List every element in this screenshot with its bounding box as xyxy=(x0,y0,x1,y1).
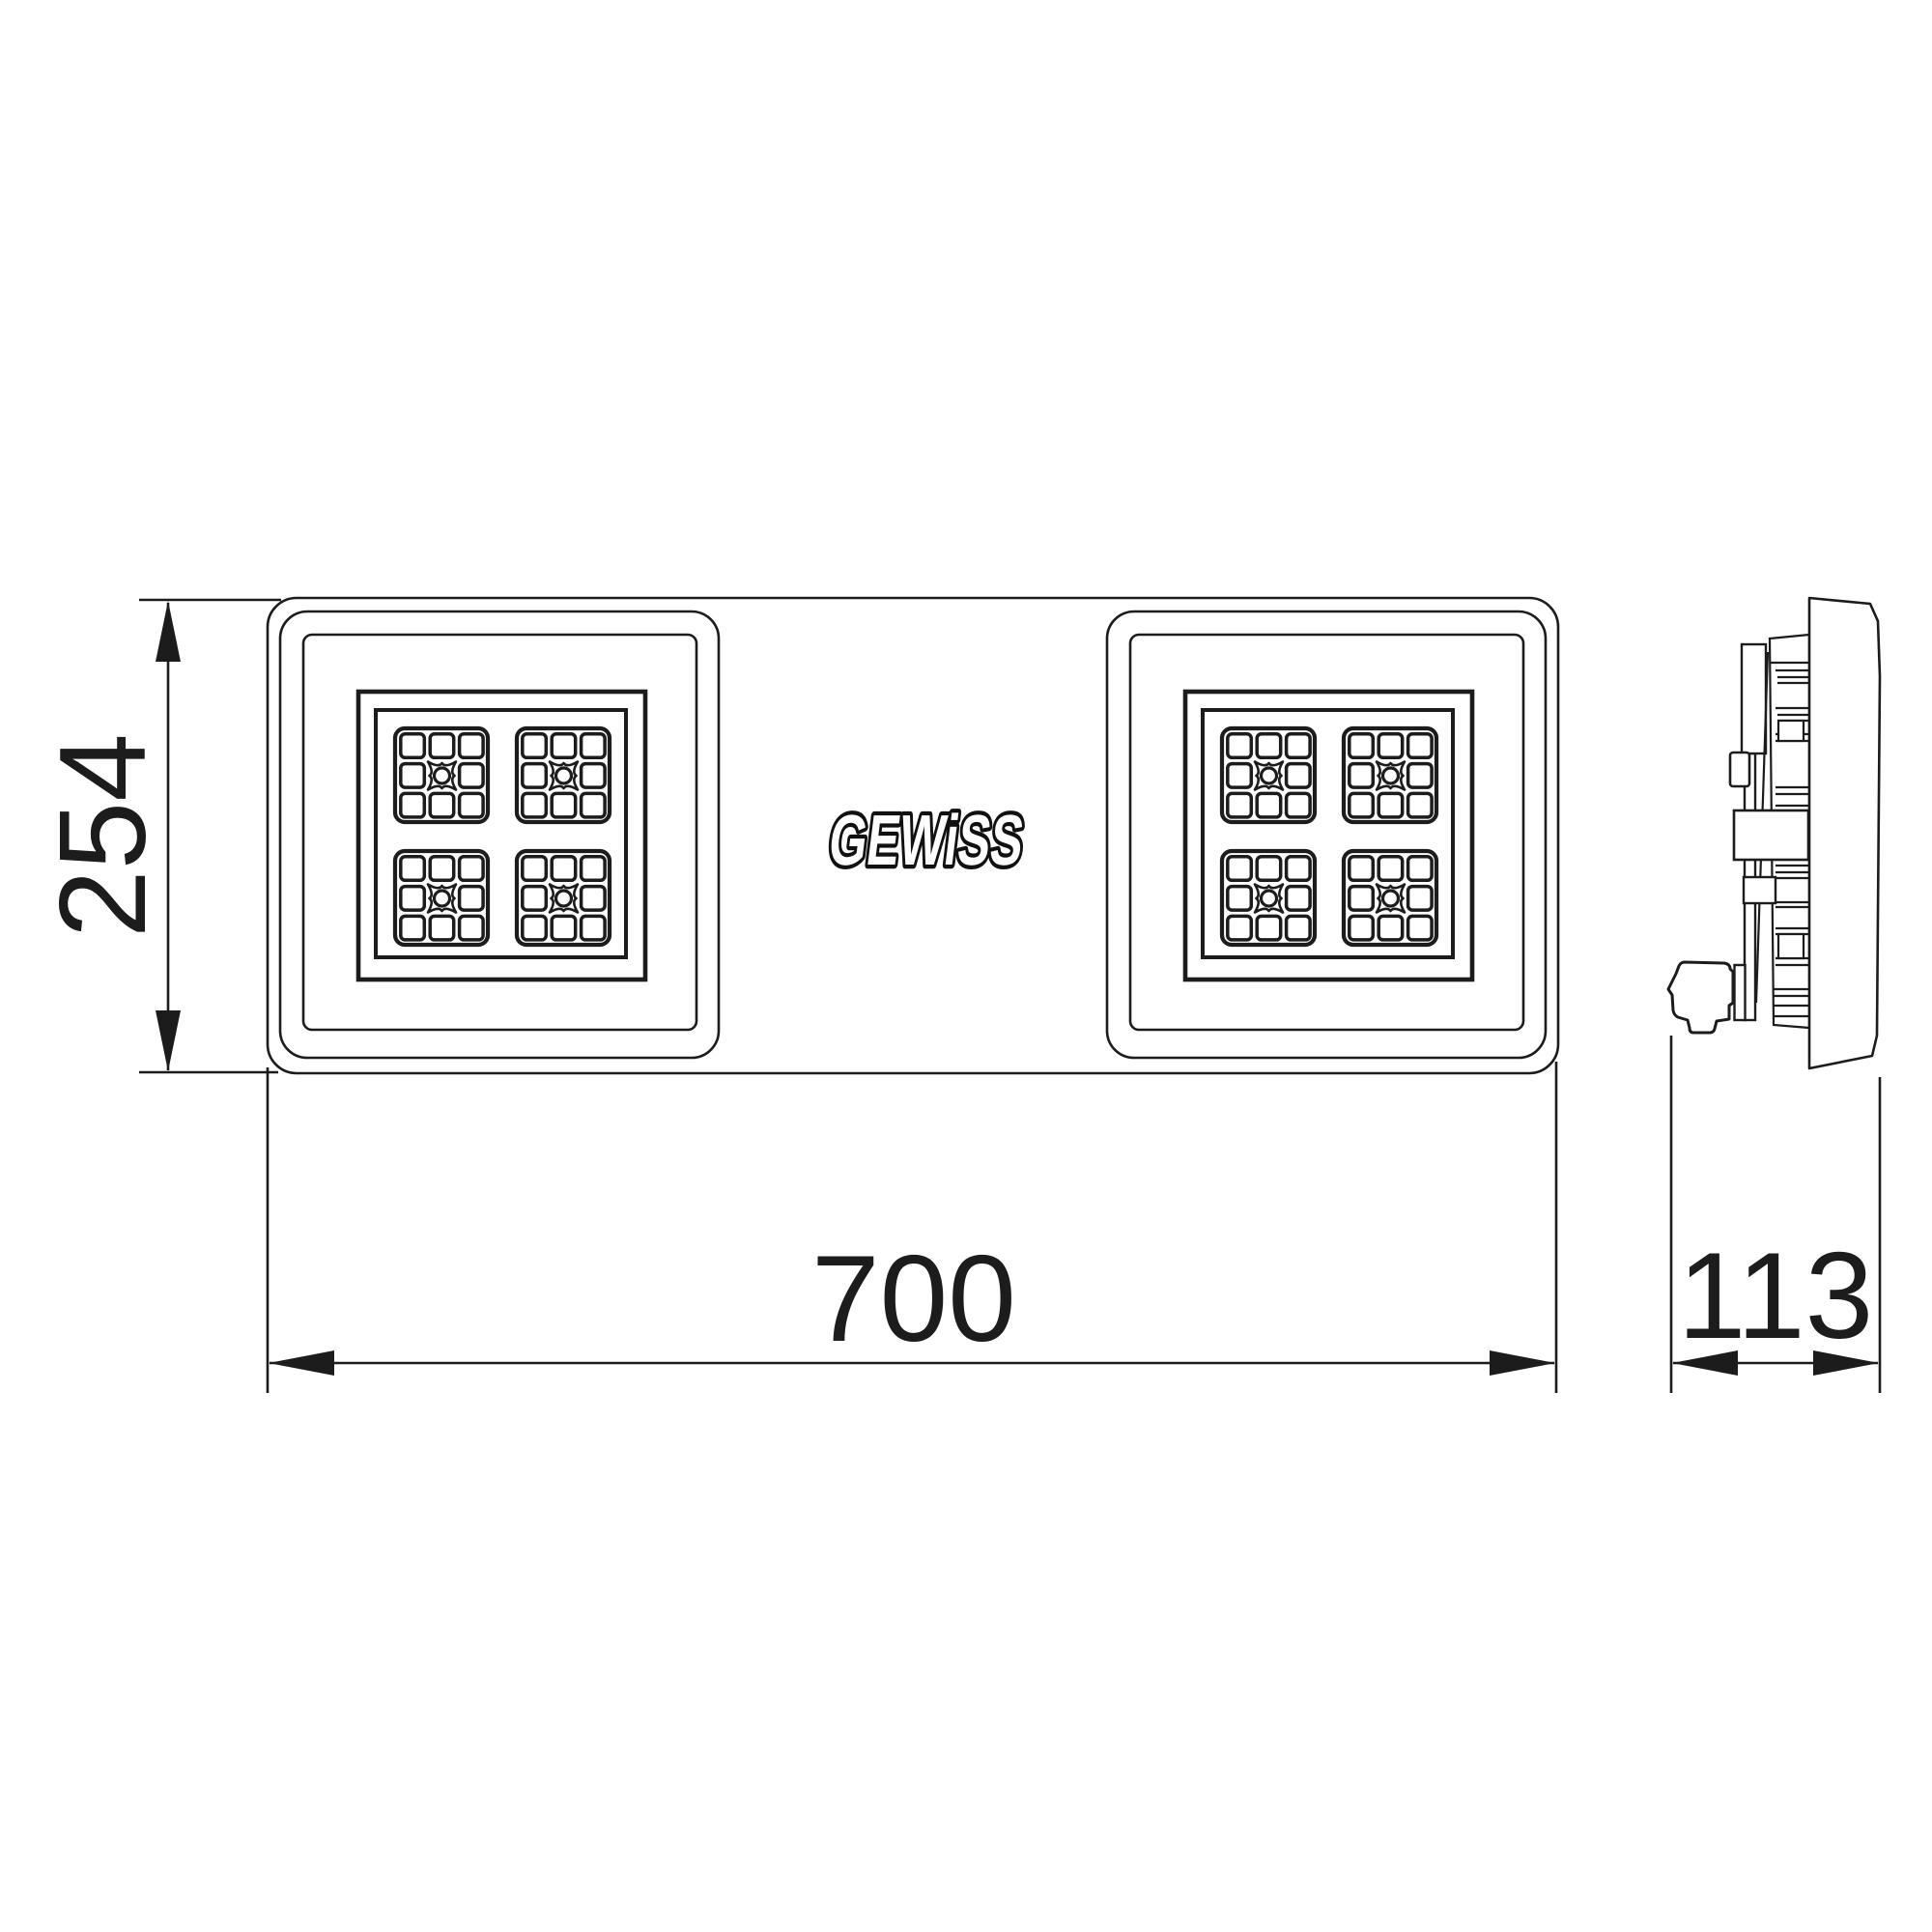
svg-text:113: 113 xyxy=(1678,1227,1873,1364)
svg-text:254: 254 xyxy=(34,733,171,938)
svg-text:GEWiSS: GEWiSS xyxy=(825,800,1028,880)
svg-text:700: 700 xyxy=(811,1230,1016,1367)
